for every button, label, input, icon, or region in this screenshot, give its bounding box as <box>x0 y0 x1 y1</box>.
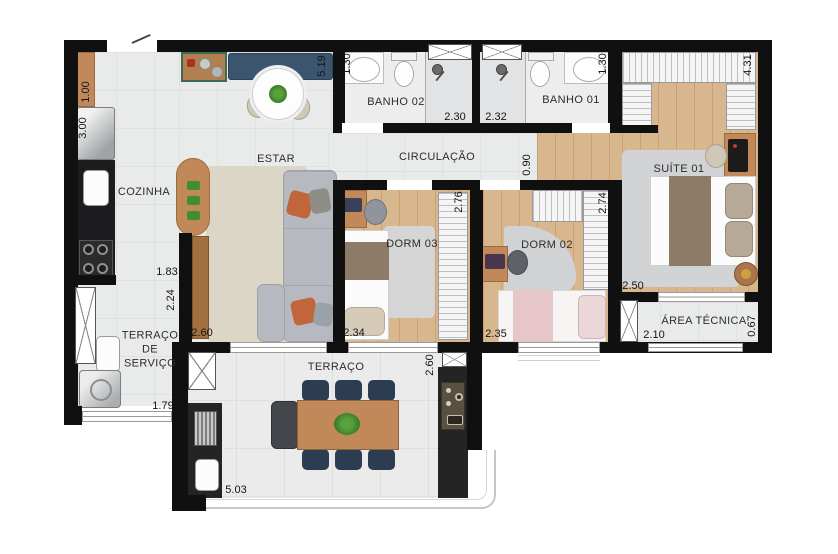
room-label-dorm02: DORM 02 <box>521 239 573 251</box>
gourmet-appliance <box>441 382 465 430</box>
room-label-circulacao: CIRCULAÇÃO <box>399 151 475 163</box>
dim-terraco-depth: 2.60 <box>424 354 436 375</box>
terraco-chair <box>302 449 329 470</box>
dorm02-desk <box>482 246 508 282</box>
suite-runner <box>669 176 711 266</box>
laptop-icon <box>343 198 362 212</box>
dim-estar-length: 5.19 <box>316 55 328 76</box>
tv-dot <box>733 144 737 148</box>
dorm02-blanket <box>513 290 553 342</box>
burner-icon <box>97 244 108 255</box>
shaft-shower-banho01 <box>482 44 522 60</box>
dorm03-wardrobe <box>438 192 468 340</box>
sofa-pillow <box>312 302 334 327</box>
dim-suite-width: 2.50 <box>622 280 643 292</box>
kitchen-island <box>176 158 210 236</box>
louver-servico <box>82 411 172 422</box>
knob <box>455 393 463 401</box>
vent-area-tecnica <box>648 343 743 352</box>
door-dorm02 <box>480 180 520 190</box>
island-plate <box>187 211 200 220</box>
pillar-area-tecnica <box>620 300 638 342</box>
gold-bowl <box>741 269 751 279</box>
suite-wardrobe-top <box>622 52 756 83</box>
dim-suite-length: 4.31 <box>742 54 754 75</box>
room-label-estar: ESTAR <box>257 153 295 165</box>
wall-servico-estar <box>179 233 192 352</box>
suite-pillow <box>725 221 753 257</box>
dim-cozinha-width: 1.83 <box>156 266 177 278</box>
sliding-door-terraco <box>230 342 327 353</box>
toilet-bowl-banho01 <box>530 61 550 87</box>
suite-desk <box>724 133 756 178</box>
room-label-area-tecnica: ÁREA TÉCNICA <box>661 315 746 327</box>
pillar-terraco-right <box>442 352 467 367</box>
laundry-sink <box>96 336 120 372</box>
sill-dorm02 <box>518 355 600 361</box>
dorm02-wardrobe-top <box>532 190 583 222</box>
suite-bed <box>650 176 756 266</box>
room-label-terraco-servico: TERRAÇO DE SERVIÇO <box>121 329 179 370</box>
console-item <box>187 59 195 67</box>
wall-suite-bottom-right <box>743 292 758 302</box>
wall-cozinha-servico <box>64 275 116 285</box>
room-label-suite01: SUÍTE 01 <box>654 163 705 175</box>
console-sideboard <box>181 52 227 82</box>
wall-right <box>758 40 772 353</box>
suite-wardrobe-right <box>726 83 756 130</box>
console-item <box>199 58 211 70</box>
dim-terraco-width: 5.03 <box>225 484 246 496</box>
room-label-banho02: BANHO 02 <box>367 96 425 108</box>
dim-banho01-length: 2.32 <box>485 111 506 123</box>
toilet-banho02 <box>391 52 417 61</box>
shaft-shower-banho02 <box>428 44 472 60</box>
dim-servico-width: 1.79 <box>152 400 173 412</box>
suite-wardrobe-left <box>622 83 652 130</box>
terraco-sink <box>195 459 219 491</box>
terraco-head-chair <box>271 401 299 449</box>
suite-stool <box>705 144 727 168</box>
sofa-chaise <box>257 284 285 342</box>
dorm02-pillow <box>578 295 606 339</box>
window-dorm02 <box>518 342 600 353</box>
room-label-banho01: BANHO 01 <box>542 94 600 106</box>
terraco-chair <box>335 380 362 401</box>
kitchen-sink <box>83 170 109 206</box>
terraco-chair <box>335 449 362 470</box>
terraco-chair <box>368 449 395 470</box>
dim-estar-width: 2.60 <box>191 327 212 339</box>
dim-circulacao-width: 0.90 <box>521 154 533 175</box>
room-label-terraco: TERRAÇO <box>308 361 365 373</box>
suite-pillow <box>725 183 753 219</box>
dim-area-tecnica-depth: 0.67 <box>746 315 758 336</box>
window-dorm03 <box>348 342 438 353</box>
floor-suite-entry <box>537 133 622 182</box>
door-banho02 <box>342 123 383 133</box>
grill <box>194 411 217 446</box>
wall-left <box>64 40 78 425</box>
dim-servico-depth: 2.24 <box>165 289 177 310</box>
dim-dorm02-width: 2.35 <box>485 328 506 340</box>
dim-cozinha-side: 3.00 <box>77 117 89 138</box>
suite-side-table <box>734 262 758 286</box>
tv-icon <box>728 139 748 172</box>
wall-shower-divider <box>472 40 480 133</box>
dim-cozinha-counter: 1.00 <box>80 81 92 102</box>
laptop-icon <box>485 254 505 269</box>
sofa-pillow <box>308 187 332 214</box>
tall-cabinet <box>192 236 209 339</box>
terraco-chair <box>302 380 329 401</box>
room-label-cozinha: COZINHA <box>118 186 170 198</box>
dorm02-bed <box>498 290 606 342</box>
cabinet-servico <box>75 287 96 364</box>
terraco-table-plant <box>334 413 360 435</box>
dim-dorm02-depth: 2.74 <box>597 192 609 213</box>
knob <box>446 401 451 406</box>
dim-dorm03-width: 2.34 <box>343 327 364 339</box>
burner-icon <box>97 263 108 274</box>
pillar-terraco-left <box>188 352 216 390</box>
knob <box>446 388 451 393</box>
room-label-dorm03: DORM 03 <box>386 238 438 250</box>
wall-suite-cap <box>608 125 658 133</box>
dorm02-chair <box>507 250 528 275</box>
terraco-chair <box>368 380 395 401</box>
wall-terraco-right <box>467 353 482 450</box>
console-item <box>211 66 223 78</box>
table-plant <box>269 85 287 103</box>
toilet-bowl-banho02 <box>394 61 414 87</box>
island-plate <box>187 181 200 190</box>
wall-suite-left <box>608 40 622 125</box>
dorm03-blanket <box>338 242 389 280</box>
door-banho01 <box>572 123 610 133</box>
washing-machine <box>79 370 121 408</box>
dim-banho02-width: 1.30 <box>341 53 353 74</box>
burner-icon <box>83 244 94 255</box>
window-suite <box>658 292 745 302</box>
knob <box>447 415 463 425</box>
dim-area-tecnica-width: 2.10 <box>643 329 664 341</box>
dim-banho01-width: 1.30 <box>597 53 609 74</box>
door-dorm03 <box>387 180 432 190</box>
washer-drum <box>90 379 112 401</box>
island-plate <box>187 196 200 205</box>
dorm03-bed <box>338 230 389 340</box>
dim-dorm03-depth: 2.76 <box>453 191 465 212</box>
floor-plan: COZINHA ESTAR CIRCULAÇÃO BANHO 02 BANHO … <box>0 0 838 554</box>
burner-icon <box>83 263 94 274</box>
wall-servico-bottom <box>64 406 82 425</box>
wall-terraco-corner <box>172 495 206 511</box>
wall-dorm03-dorm02 <box>470 185 483 342</box>
wall-terraco-left <box>172 353 188 511</box>
stove <box>79 240 113 280</box>
dim-banho02-length: 2.30 <box>444 111 465 123</box>
toilet-banho01 <box>528 52 554 61</box>
dorm03-chair <box>364 199 387 225</box>
